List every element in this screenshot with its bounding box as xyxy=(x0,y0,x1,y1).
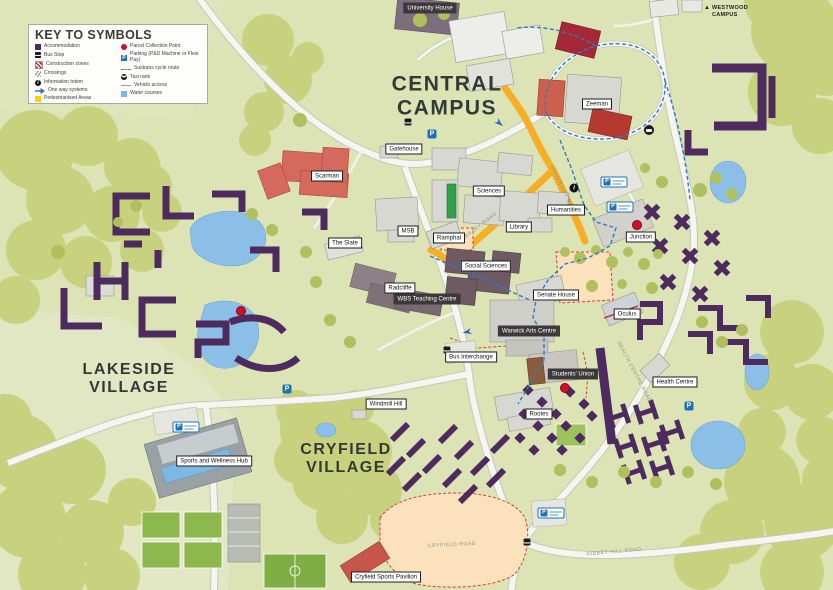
parcel-collection-icon xyxy=(121,44,127,50)
legend-item-label: Vehicle access xyxy=(134,83,167,89)
crossings-icon xyxy=(35,71,41,77)
legend-item: iInformation totem xyxy=(35,80,115,86)
legend-item: Pedestrianised Areas xyxy=(35,96,115,102)
label-windmill-hill: Windmill Hill xyxy=(366,399,407,410)
legend-item-label: One way systems xyxy=(48,88,87,94)
label-health-centre: Health Centre xyxy=(652,377,697,388)
label-university-house: University House xyxy=(403,3,456,14)
label-zeeman: Zeeman xyxy=(582,99,612,110)
pedestrianised-icon xyxy=(35,96,41,102)
vehicle-access-icon xyxy=(121,85,131,87)
label-wbs-teaching-centre: WBS Teaching Centre xyxy=(394,294,461,305)
parking-icon: P xyxy=(604,179,611,186)
label-social-sciences: Social Sciences xyxy=(461,261,511,272)
legend-item: Taxi rank xyxy=(121,74,201,80)
legend-item: One way systems xyxy=(35,88,115,94)
label-scarman: Scarman xyxy=(311,171,343,182)
label-radcliffe: Radcliffe xyxy=(384,283,415,294)
car-park-text-lines xyxy=(619,204,631,210)
information-totem-icon: i xyxy=(570,184,579,193)
legend-title: KEY TO SYMBOLS xyxy=(35,28,201,42)
north-arrow-icon: ▲ xyxy=(704,5,710,19)
legend-item: Accommodation xyxy=(35,44,115,50)
legend-item-label: Parking (P&D Machine or Flexi Pay) xyxy=(130,52,201,64)
legend-item: Sustrans cycle route xyxy=(121,66,201,72)
parking-icon: P xyxy=(610,204,617,211)
taxi-rank-icon xyxy=(121,74,127,80)
district-central-campus: CENTRAL CAMPUS xyxy=(392,72,503,119)
label-students-union: Students' Union xyxy=(548,369,598,380)
label-senate-house: Senate House xyxy=(533,290,579,301)
legend-item-label: Bus Stop xyxy=(44,53,64,59)
legend-item: Parcel Collection Point xyxy=(121,44,201,50)
legend-columns: Accommodation Bus Stop Construction zone… xyxy=(35,44,201,102)
legend-item: PParking (P&D Machine or Flexi Pay) xyxy=(121,52,201,64)
legend: KEY TO SYMBOLS Accommodation Bus Stop Co… xyxy=(28,24,208,104)
district-lakeside-village: LAKESIDE VILLAGE xyxy=(83,361,176,397)
car-park-sign: P xyxy=(173,422,200,433)
parking-icon: P xyxy=(685,402,694,411)
parcel-collection-icon xyxy=(632,220,642,230)
cycle-route-icon xyxy=(121,69,131,70)
parking-icon: P xyxy=(121,55,127,61)
parking-icon: P xyxy=(428,130,437,139)
parking-icon: P xyxy=(283,385,292,394)
construction-icon xyxy=(35,61,43,69)
legend-item-label: Crossings xyxy=(44,71,66,77)
parcel-collection-icon xyxy=(560,383,570,393)
label-cryfield-sports-pavilion: Cryfield Sports Pavilion xyxy=(351,572,421,583)
car-park-sign: P xyxy=(538,508,565,519)
label-oculus: Oculus xyxy=(614,309,641,320)
legend-item-label: Water courses xyxy=(130,91,162,97)
parking-icon: P xyxy=(541,510,548,517)
label-ramphal: Ramphal xyxy=(433,233,465,244)
label-library: Library xyxy=(506,222,532,233)
car-park-text-lines xyxy=(185,424,197,430)
legend-item-label: Information totem xyxy=(44,80,83,86)
legend-item-label: Taxi rank xyxy=(130,75,150,81)
campus-map: CENTRAL CAMPUS LAKESIDE VILLAGE CRYFIELD… xyxy=(0,0,833,590)
information-totem-icon: i xyxy=(35,80,41,86)
legend-item: Bus Stop xyxy=(35,52,115,58)
legend-item: Crossings xyxy=(35,71,115,77)
legend-item-label: Sustrans cycle route xyxy=(134,66,179,72)
legend-item: Water courses xyxy=(121,91,201,97)
car-park-sign: P xyxy=(601,177,628,188)
label-humanities: Humanities xyxy=(547,205,585,216)
car-park-text-lines xyxy=(613,179,625,185)
label-rootes: Rootes xyxy=(525,409,552,420)
district-cryfield-village: CRYFIELD VILLAGE xyxy=(300,441,391,477)
label-sciences: Sciences xyxy=(473,186,505,197)
car-park-sign: P xyxy=(607,202,634,213)
taxi-rank-icon xyxy=(644,125,654,135)
legend-item-label: Accommodation xyxy=(44,44,80,50)
legend-item: Construction zones xyxy=(35,61,115,69)
legend-column-right: Parcel Collection Point PParking (P&D Ma… xyxy=(121,44,201,102)
label-msb: MSB xyxy=(397,226,418,237)
legend-item-label: Construction zones xyxy=(46,62,89,68)
parcel-collection-icon xyxy=(236,306,246,316)
label-sports-wellness-hub: Sports and Wellness Hub xyxy=(176,456,252,467)
bus-stop-icon xyxy=(35,52,41,58)
parking-icon: P xyxy=(176,424,183,431)
westwood-label: WESTWOOD CAMPUS xyxy=(712,5,748,19)
district-westwood-campus: ▲ WESTWOOD CAMPUS xyxy=(704,5,748,19)
legend-item: Vehicle access xyxy=(121,83,201,89)
legend-item-label: Parcel Collection Point xyxy=(130,44,180,50)
legend-item-label: Pedestrianised Areas xyxy=(44,96,91,102)
bus-stop-icon xyxy=(405,119,412,126)
water-courses-icon xyxy=(121,91,127,97)
bus-stop-icon xyxy=(524,539,531,546)
label-bus-interchange: Bus Interchange xyxy=(445,352,497,363)
one-way-icon xyxy=(35,88,45,94)
car-park-text-lines xyxy=(550,510,562,516)
accommodation-icon xyxy=(35,44,41,50)
legend-column-left: Accommodation Bus Stop Construction zone… xyxy=(35,44,115,102)
label-gatehouse: Gatehouse xyxy=(385,144,422,155)
label-junction: Junction xyxy=(626,232,656,243)
label-warwick-arts-centre: Warwick Arts Centre xyxy=(498,326,560,337)
label-the-slate: The Slate xyxy=(328,238,362,249)
